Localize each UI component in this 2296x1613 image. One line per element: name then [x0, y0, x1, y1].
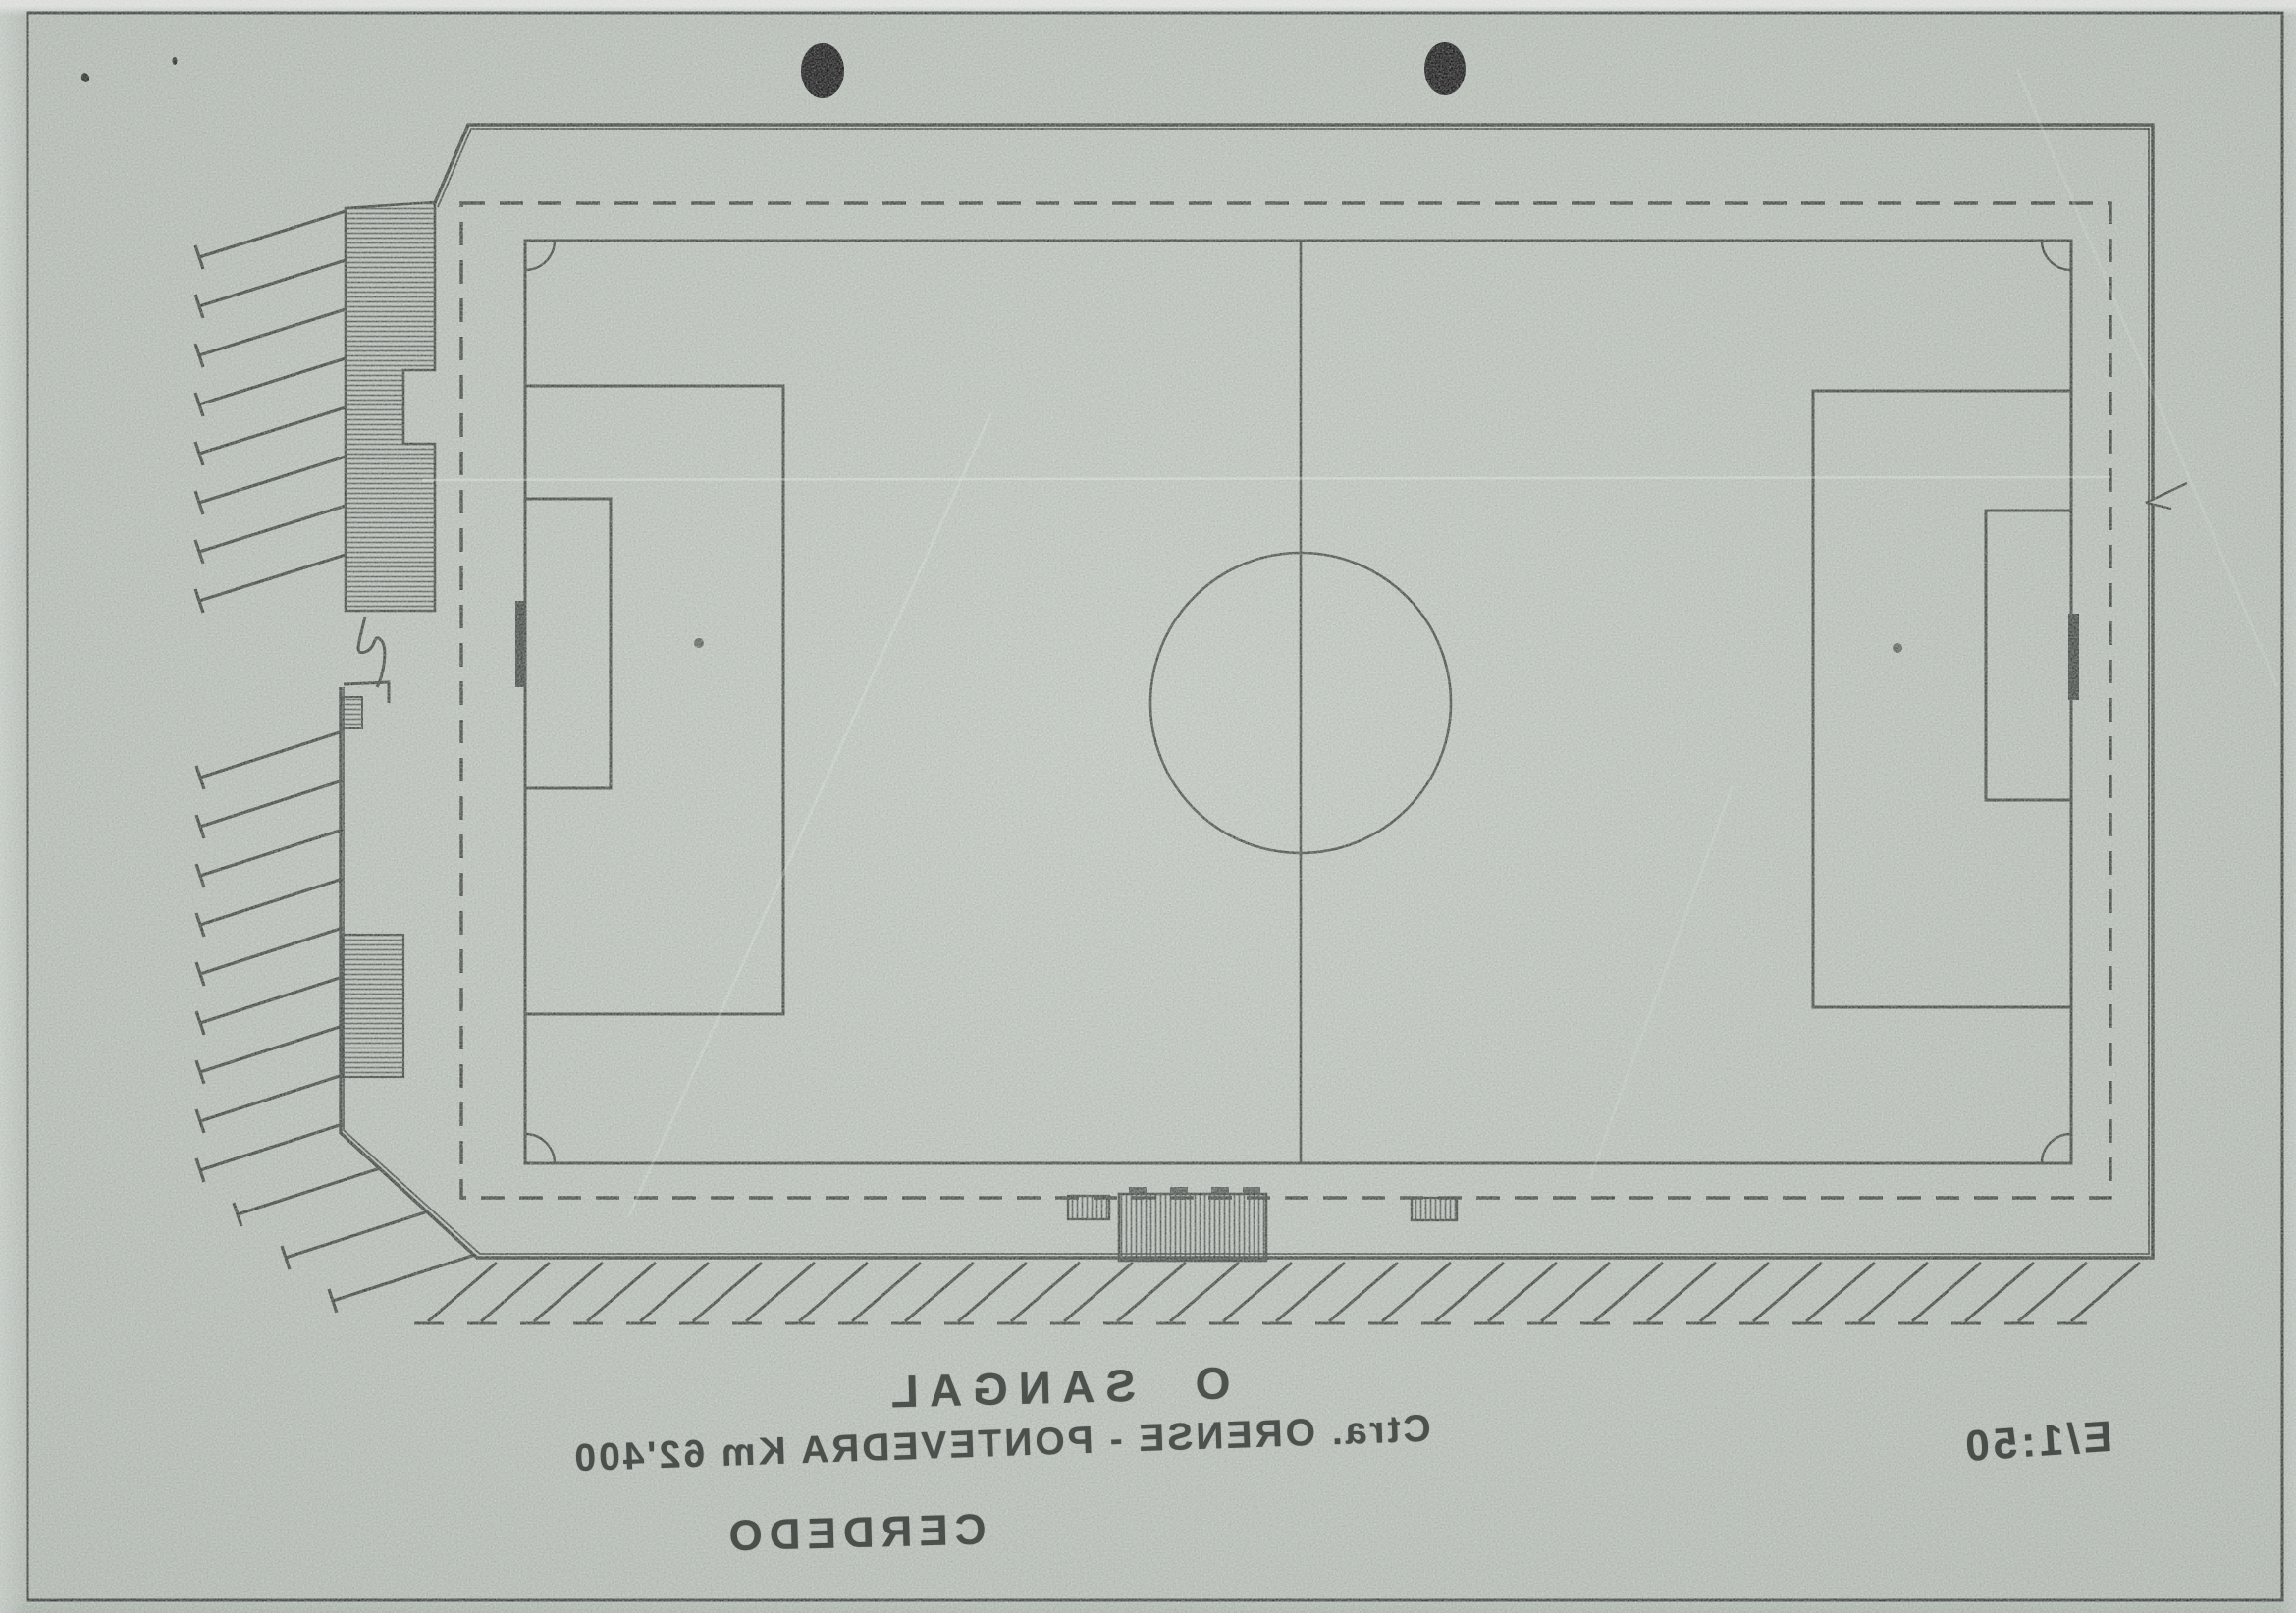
- goal-area-right: [1986, 511, 2071, 800]
- pitch-outline: [525, 241, 2071, 1163]
- south-stand-large: [1119, 1194, 1266, 1261]
- west-stand-block: [343, 935, 403, 1077]
- boundary-wall: [341, 125, 2153, 1258]
- punch-hole-right: [1424, 42, 1466, 95]
- penalty-spot-right: [1893, 643, 1902, 653]
- goal-left: [515, 601, 526, 687]
- corner-arc-top-right: [2042, 241, 2071, 270]
- corner-arc-bottom-left: [525, 1134, 555, 1163]
- ink-specks: [80, 57, 177, 83]
- south-stand-small-left: [1068, 1196, 1109, 1219]
- south-stand-small-right: [1412, 1198, 1457, 1220]
- corner-arc-bottom-right: [2042, 1134, 2071, 1163]
- town-name-text: CERDEDO: [701, 1505, 1006, 1562]
- gate-squiggle: [358, 617, 385, 687]
- goal-right: [2068, 614, 2079, 700]
- penalty-area-right: [1813, 391, 2071, 1007]
- football-pitch: [525, 241, 2071, 1163]
- west-stand-small: [341, 697, 362, 728]
- penalty-spot-left: [694, 638, 704, 648]
- punch-hole-left: [801, 43, 844, 98]
- west-fence-lower-hatch: [196, 731, 475, 1313]
- perimeter-dashed-line: [461, 203, 2110, 1198]
- grandstand-west: [346, 202, 435, 611]
- goal-area-left: [525, 499, 611, 788]
- west-fence-upper-hatch: [195, 211, 346, 613]
- boundary-wall-inner-line: [344, 129, 2149, 1254]
- club-name-text: O SANGAL: [863, 1356, 1247, 1419]
- south-ground-hatch: [414, 1263, 2140, 1323]
- drawing-sheet: O SANGAL Ctra. ORENSE - PONTEVEDRA Km 62…: [0, 0, 2296, 1613]
- corner-arc-top-left: [525, 241, 555, 270]
